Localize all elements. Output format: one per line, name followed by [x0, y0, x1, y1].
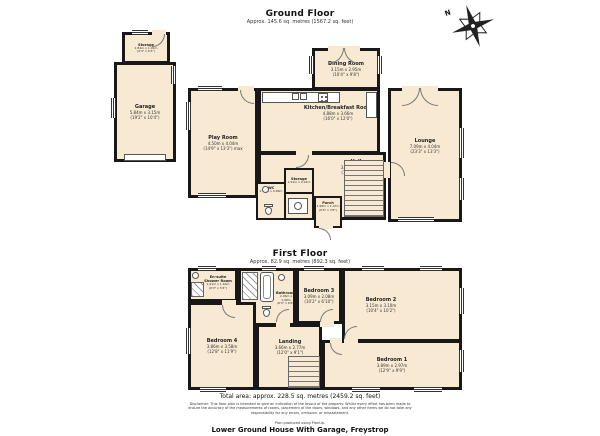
- window: [186, 328, 191, 354]
- first-floor-title: First Floor: [0, 249, 600, 259]
- bedroom-3-label: Bedroom 3 3.09m x 2.08m (10'2" x 6'10"): [304, 288, 335, 304]
- basin-icon: [278, 274, 285, 281]
- ground-floor-subtitle: Approx. 145.6 sq. metres (1567.2 sq. fee…: [0, 19, 600, 25]
- window: [362, 266, 384, 271]
- porch-label: Porch 1.98m x 1.07m (6'6" x 3'6"): [316, 201, 340, 212]
- shower-cubicle: [242, 272, 258, 300]
- window: [198, 193, 226, 198]
- first-floor-subtitle: Approx. 82.9 sq. metres (892.3 sq. feet): [0, 259, 600, 265]
- room-lounge: Lounge 7.09m x 4.04m (23'3" x 13'3"): [388, 88, 462, 222]
- room-bedroom-4: Bedroom 4 3.86m x 3.58m (12'8" x 11'9"): [188, 302, 256, 390]
- kitchen-counter: [366, 92, 377, 118]
- garage-label: Garage 5.84m x 3.15m (19'2" x 10'4"): [130, 104, 161, 120]
- window: [459, 128, 464, 158]
- bedroom-1-label: Bedroom 1 3.89m x 2.97m (12'9" x 9'9"): [377, 357, 408, 373]
- ground-floor-title: Ground Floor: [0, 9, 600, 19]
- window: [309, 56, 314, 74]
- room-bedroom-3: Bedroom 3 3.09m x 2.08m (10'2" x 6'10"): [296, 268, 342, 324]
- room-garage: Garage 5.84m x 3.15m (19'2" x 10'4"): [114, 62, 176, 162]
- door-opening: [384, 162, 390, 178]
- produced-by-line: Plan produced using PlanUp.: [0, 421, 600, 425]
- bathroom-label: Bathroom 2.06m x 1.98m (6'9" x 6'6"): [275, 291, 297, 305]
- room-bedroom-1: Bedroom 1 3.89m x 2.97m (12'9" x 9'9"): [322, 340, 462, 390]
- toilet-icon: [264, 204, 273, 216]
- stairs-ground: [344, 160, 384, 217]
- inner-storage-label: Storage 1.52m x 0.91m: [288, 177, 311, 185]
- garage-door: [124, 154, 166, 161]
- play-room-label: Play Room 4.50m x 4.04m (14'9" x 13'3") …: [203, 135, 242, 151]
- lounge-label: Lounge 7.09m x 4.04m (23'3" x 13'3"): [410, 138, 441, 172]
- sink-icon: [292, 93, 299, 100]
- bedroom-4-label: Bedroom 4 3.86m x 3.58m (12'8" x 11'9"): [207, 338, 238, 354]
- window: [377, 56, 382, 74]
- room-inner-storage: Storage 1.52m x 0.91m: [284, 168, 314, 194]
- window: [132, 30, 148, 35]
- window: [198, 266, 216, 271]
- window: [186, 102, 191, 130]
- basin-icon: [262, 186, 269, 193]
- window: [459, 350, 464, 372]
- shower-cubicle: [191, 282, 204, 297]
- hob-icon: [318, 93, 328, 102]
- bath-icon: [260, 272, 274, 302]
- kitchen-label: Kitchen/Breakfast Room 4.88m x 3.66m (16…: [266, 105, 372, 137]
- ensuite-label: En-suite Shower Room 1.91m x 1.63m (6'3"…: [203, 275, 233, 290]
- room-play-room: Play Room 4.50m x 4.04m (14'9" x 13'3") …: [188, 88, 258, 198]
- window: [459, 288, 464, 314]
- window: [420, 266, 442, 271]
- window: [304, 266, 324, 271]
- total-area-line: Total area: approx. 228.5 sq. metres (24…: [0, 393, 600, 400]
- window: [171, 66, 176, 84]
- window: [111, 98, 116, 118]
- floorplan-page: Ground Floor Approx. 145.6 sq. metres (1…: [0, 0, 600, 436]
- window: [459, 178, 464, 200]
- window: [198, 86, 222, 91]
- room-bedroom-2: Bedroom 2 3.15m x 3.10m (10'4" x 10'2"): [342, 268, 462, 342]
- property-title: Lower Ground House With Garage, Freystro…: [0, 426, 600, 434]
- window: [352, 387, 380, 392]
- sink-icon: [294, 202, 302, 210]
- disclaimer-text: Disclaimer: This floor plan is intended …: [185, 402, 415, 415]
- toilet-icon: [262, 306, 271, 318]
- door-arc: [319, 228, 331, 240]
- window: [200, 387, 226, 392]
- stairs-first: [288, 356, 320, 388]
- sink-icon: [300, 93, 307, 100]
- window: [414, 387, 442, 392]
- window: [398, 217, 434, 222]
- basin-icon: [192, 272, 199, 279]
- bedroom-2-label: Bedroom 2 3.15m x 3.10m (10'4" x 10'2"): [366, 297, 397, 313]
- window: [262, 266, 276, 271]
- landing-label: Landing 3.66m x 2.77m (12'0" x 9'1"): [267, 339, 313, 355]
